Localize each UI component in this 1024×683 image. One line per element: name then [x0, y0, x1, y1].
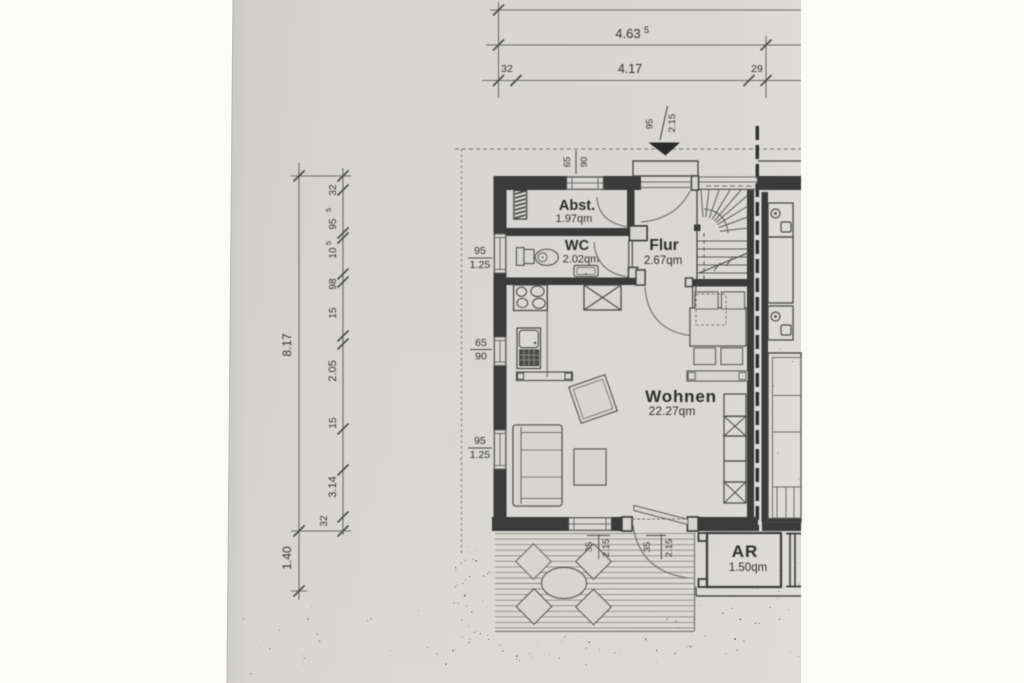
svg-text:2.15: 2.15	[601, 539, 612, 558]
svg-text:1.25: 1.25	[470, 259, 491, 271]
svg-text:3.14: 3.14	[327, 476, 339, 497]
svg-text:10: 10	[328, 247, 339, 259]
svg-text:2.15: 2.15	[667, 114, 678, 133]
svg-text:2.05: 2.05	[327, 360, 339, 381]
svg-text:95: 95	[328, 218, 339, 230]
svg-text:32: 32	[328, 184, 339, 196]
svg-text:1.25: 1.25	[470, 449, 491, 461]
svg-text:Flur: Flur	[649, 237, 678, 254]
svg-text:1.97qm: 1.97qm	[556, 213, 593, 225]
svg-text:32: 32	[501, 63, 513, 75]
svg-text:15: 15	[328, 307, 339, 319]
svg-text:4.17: 4.17	[618, 62, 642, 76]
svg-text:4.63: 4.63	[615, 26, 640, 41]
svg-text:95: 95	[474, 435, 486, 447]
svg-text:90: 90	[579, 157, 590, 168]
svg-text:WC: WC	[565, 238, 590, 254]
svg-text:32: 32	[319, 515, 330, 527]
svg-text:35: 35	[642, 542, 653, 553]
svg-text:29: 29	[751, 63, 763, 75]
svg-text:1.50qm: 1.50qm	[729, 562, 767, 574]
svg-text:1.40: 1.40	[280, 546, 294, 570]
svg-text:65: 65	[562, 157, 573, 168]
svg-text:35: 35	[584, 542, 595, 553]
svg-text:2.15: 2.15	[664, 539, 675, 558]
svg-text:2.02qm: 2.02qm	[563, 254, 600, 266]
svg-text:95: 95	[474, 245, 486, 257]
svg-text:5: 5	[324, 208, 333, 212]
svg-text:AR: AR	[732, 542, 759, 561]
svg-text:95: 95	[645, 119, 656, 130]
svg-text:Abst.: Abst.	[559, 198, 595, 214]
svg-text:5: 5	[644, 25, 649, 35]
svg-text:90: 90	[475, 351, 487, 363]
svg-text:5: 5	[324, 241, 333, 245]
svg-text:65: 65	[475, 337, 487, 349]
svg-text:2.67qm: 2.67qm	[644, 255, 682, 267]
svg-text:8.17: 8.17	[280, 333, 294, 357]
svg-text:15: 15	[328, 417, 339, 429]
svg-text:22.27qm: 22.27qm	[649, 404, 696, 418]
svg-text:98: 98	[328, 278, 339, 290]
